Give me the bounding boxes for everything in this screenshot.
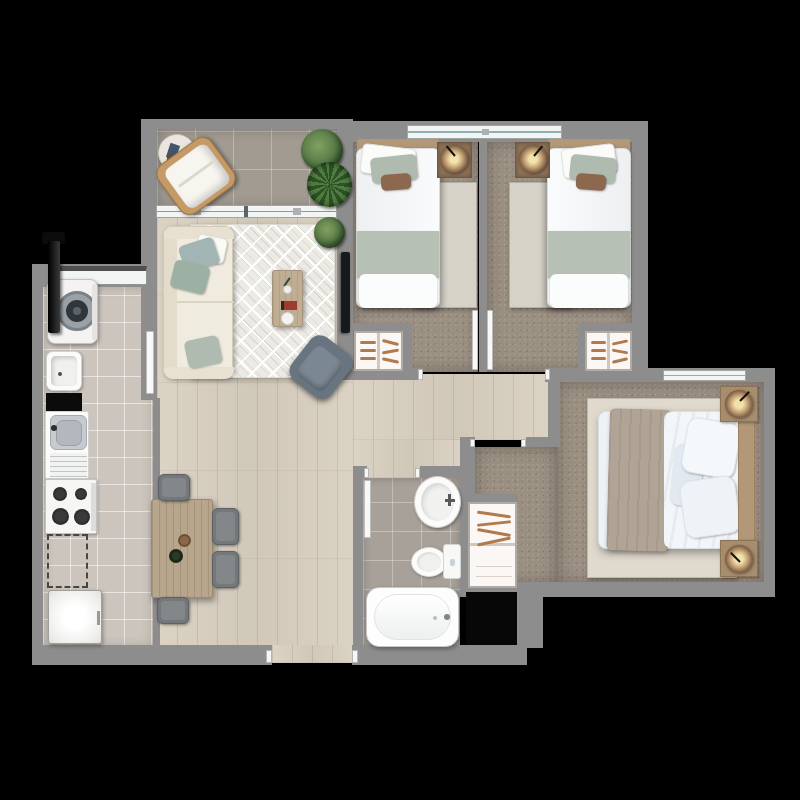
wardrobe1-niche-top xyxy=(345,323,412,331)
coffee-table xyxy=(272,270,303,327)
hallway-floor xyxy=(353,374,550,440)
wardrobe2-niche-side xyxy=(578,323,585,372)
burner-1 xyxy=(53,487,67,501)
master-door-jamb-right xyxy=(521,439,526,447)
burner-3 xyxy=(52,508,69,525)
terrace-top-wall xyxy=(141,119,345,129)
master-throw-runner xyxy=(606,408,672,552)
window-tick xyxy=(482,129,489,135)
bedroom2-throw xyxy=(548,231,630,278)
lamp-arm xyxy=(739,391,750,402)
refrigerator xyxy=(48,590,102,644)
dining-chair-south xyxy=(157,597,189,624)
bedroom2-east-wall xyxy=(632,121,648,382)
slider-handle-right xyxy=(293,208,301,215)
master-closet xyxy=(468,502,517,588)
terrace-palm xyxy=(307,162,352,207)
washer-agitator xyxy=(73,307,81,315)
bedroom1-sheet-fold xyxy=(359,274,437,308)
bedroom2-pillow-brown xyxy=(575,173,606,191)
service-shaft xyxy=(466,592,517,645)
appliance-space-dashed xyxy=(47,534,88,588)
sink-faucet xyxy=(51,425,57,431)
table-tray xyxy=(281,312,294,325)
wardrobe2-niche-top xyxy=(578,323,648,331)
sofa-arm-bottom xyxy=(164,367,234,379)
bedroom1-door-leaf xyxy=(472,310,478,370)
burner-4 xyxy=(74,509,90,525)
entrance-jamb-right xyxy=(352,650,358,663)
south-outer-wall-right xyxy=(352,645,527,665)
living-plant xyxy=(314,217,345,248)
master-lamp-bottom xyxy=(725,545,753,573)
dining-chair-east-1 xyxy=(212,508,239,545)
bedrooms-divider-wall xyxy=(479,142,487,372)
bedroom1-door-jamb xyxy=(418,369,423,380)
sofa-seat-split xyxy=(177,301,234,303)
shaft-east-wall xyxy=(517,592,543,648)
sofa-back xyxy=(164,227,177,379)
slider-mullion xyxy=(244,206,248,217)
flush-button xyxy=(450,559,455,566)
master-pillow-1 xyxy=(680,416,743,481)
entrance-threshold xyxy=(272,645,352,663)
laundry-tub xyxy=(46,351,82,391)
wardrobe1-niche-side xyxy=(403,323,412,372)
bathtub xyxy=(366,587,459,647)
cooktop-panel xyxy=(91,483,96,531)
kitchen-sink-unit xyxy=(45,411,89,479)
master-pillow-2 xyxy=(678,474,742,539)
dining-table xyxy=(151,499,213,598)
lamp-arm xyxy=(730,552,741,563)
armchair-seat xyxy=(295,343,345,394)
tub-drain xyxy=(58,372,62,376)
bedroom2-door-leaf xyxy=(487,310,493,370)
bathtub-faucet xyxy=(444,614,450,620)
bathtub-inner xyxy=(374,594,451,640)
master-lamp-top xyxy=(725,390,753,418)
tub-basin xyxy=(51,356,77,386)
toilet-tank xyxy=(443,544,461,579)
bathtub-drain xyxy=(433,616,437,620)
bathroom-sink xyxy=(414,476,461,528)
lamp-arm xyxy=(446,145,456,156)
bedroom2-wardrobe xyxy=(585,331,632,371)
master-headboard xyxy=(738,414,755,548)
master-door-jamb-left xyxy=(470,439,475,447)
burner-2 xyxy=(75,488,87,500)
bedroom1-pillow-brown xyxy=(380,173,411,191)
wood-bowl xyxy=(178,534,191,547)
toilet-seat xyxy=(417,552,441,572)
closet-shelf-line xyxy=(476,576,512,577)
sink-faucet-handle xyxy=(448,494,451,506)
counter-gap xyxy=(46,393,82,411)
drainboard xyxy=(50,453,87,477)
sink-basin-inner xyxy=(56,420,82,446)
dining-chair-east-2 xyxy=(212,551,239,588)
bath-west-wall xyxy=(353,466,363,652)
bedroom2-door-jamb xyxy=(545,369,550,380)
bedroom1-wardrobe xyxy=(354,331,403,371)
dining-chair-north xyxy=(158,474,190,501)
bedroom2-lamp xyxy=(519,145,547,173)
master-door-lintel xyxy=(526,437,560,447)
wine-bottle xyxy=(169,549,183,563)
bedroom1-lamp xyxy=(440,145,468,173)
cooktop xyxy=(45,479,97,534)
toilet-bowl xyxy=(411,547,447,577)
master-east-wall xyxy=(764,368,775,597)
riser-pipe xyxy=(48,241,60,333)
laundry-door-leaf xyxy=(146,331,154,394)
bedrooms-window xyxy=(407,125,562,139)
table-book xyxy=(281,301,297,310)
fridge-handle xyxy=(97,611,100,625)
bath-door-jamb-left xyxy=(364,468,369,478)
bedroom2-sheet-fold xyxy=(550,274,628,308)
floor-plan-canvas xyxy=(0,0,800,800)
bathroom-door-leaf xyxy=(364,480,371,538)
bath-door-jamb-right xyxy=(415,468,420,478)
lamp-arm xyxy=(533,145,543,156)
bedroom1-throw xyxy=(357,231,439,278)
closet-shelf-line xyxy=(476,566,512,567)
washer-panel xyxy=(92,284,97,340)
entrance-jamb-left xyxy=(266,650,272,663)
tv xyxy=(341,252,350,333)
table-pot xyxy=(283,285,292,294)
master-window xyxy=(663,370,746,381)
west-outer-wall xyxy=(32,264,43,665)
south-outer-wall-left xyxy=(32,645,272,665)
